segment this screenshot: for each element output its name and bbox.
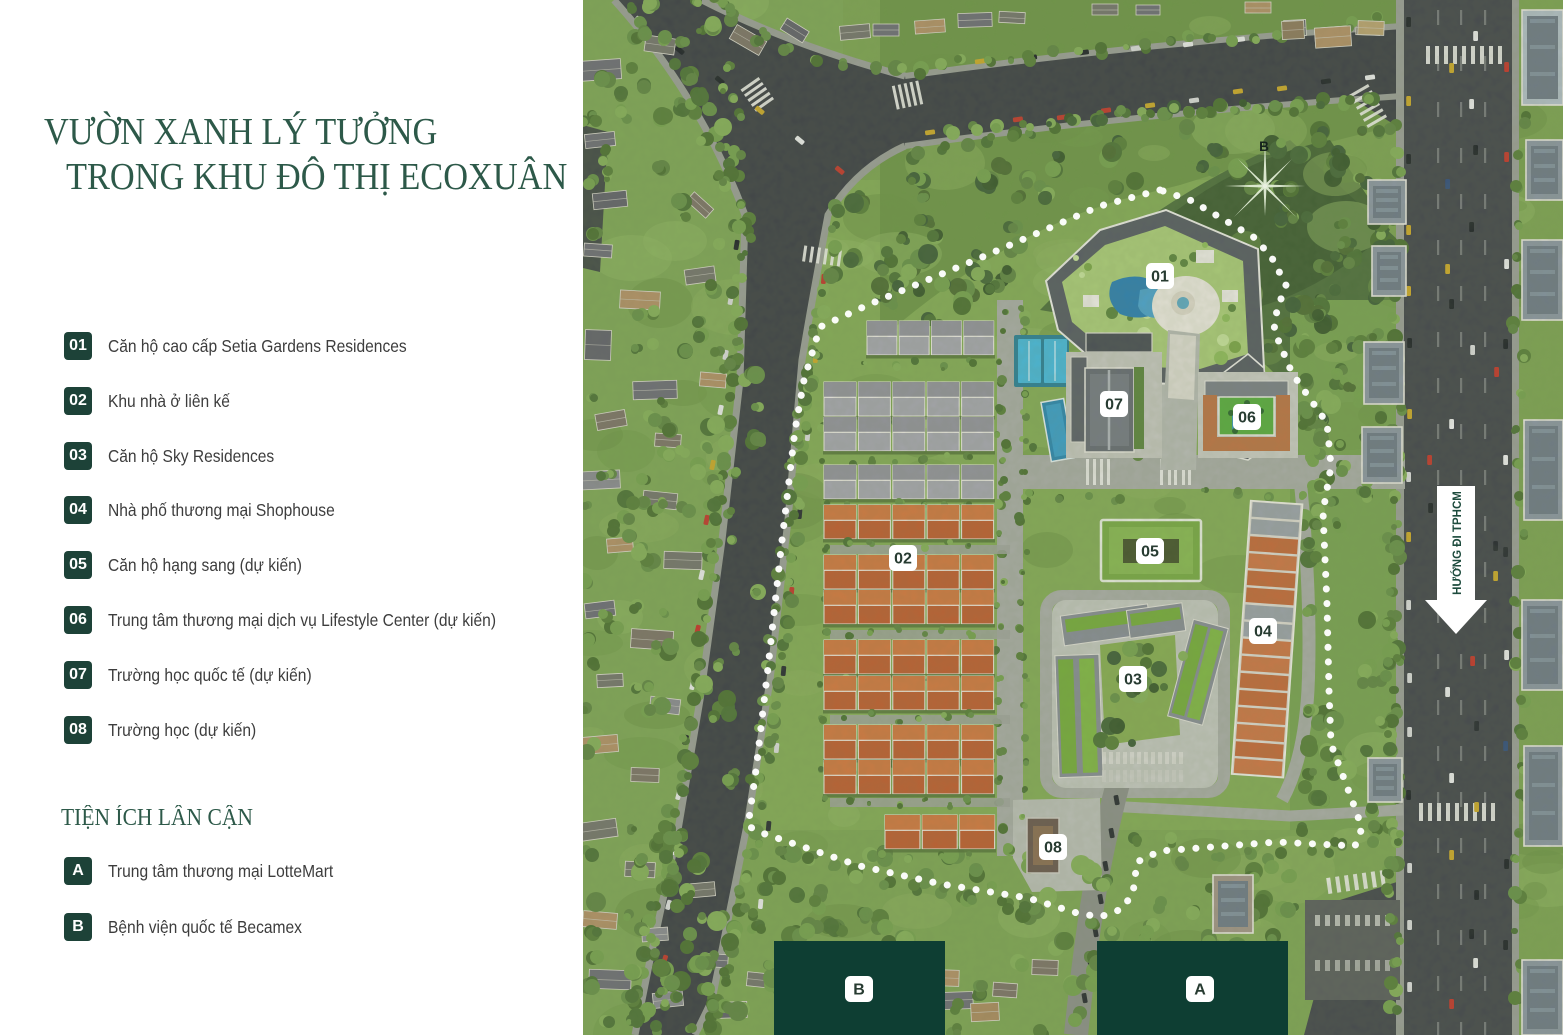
svg-text:B: B (853, 982, 865, 999)
svg-text:01: 01 (1151, 269, 1169, 286)
svg-text:B: B (1259, 139, 1269, 154)
svg-text:02: 02 (894, 551, 912, 568)
svg-text:06: 06 (1238, 410, 1256, 427)
svg-text:07: 07 (1105, 397, 1123, 414)
svg-text:04: 04 (1254, 624, 1272, 641)
svg-text:03: 03 (1124, 672, 1142, 689)
svg-text:A: A (1194, 982, 1206, 999)
svg-text:HƯỚNG ĐI TPHCM: HƯỚNG ĐI TPHCM (1451, 491, 1464, 595)
svg-text:05: 05 (1141, 544, 1159, 561)
svg-text:08: 08 (1044, 840, 1062, 857)
